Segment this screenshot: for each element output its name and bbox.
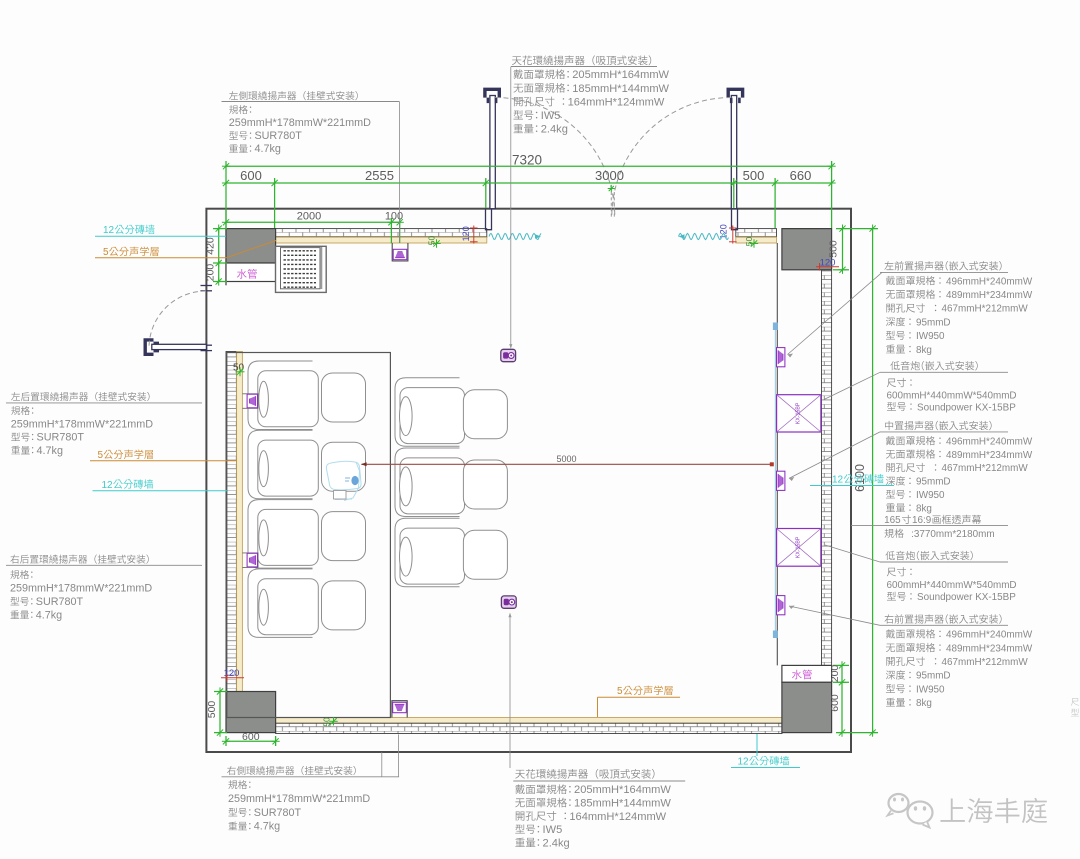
- svg-text:IW950: IW950: [916, 684, 945, 695]
- svg-text:500: 500: [828, 240, 840, 258]
- svg-text:496mmH*240mmW: 496mmH*240mmW: [946, 276, 1033, 287]
- svg-text:164mmH*124mmW: 164mmH*124mmW: [568, 96, 665, 108]
- svg-text:185mmH*144mmW: 185mmH*144mmW: [572, 83, 669, 95]
- svg-text:5: 5: [103, 247, 109, 258]
- svg-text:496mmH*240mmW: 496mmH*240mmW: [946, 436, 1033, 447]
- svg-text:259mmH*178mmW*221mmD: 259mmH*178mmW*221mmD: [10, 583, 152, 595]
- svg-text:467mmH*212mmW: 467mmH*212mmW: [942, 304, 1029, 315]
- svg-text:2.4kg: 2.4kg: [543, 837, 570, 849]
- svg-text:2000: 2000: [297, 211, 321, 223]
- svg-text:5: 5: [98, 450, 104, 461]
- svg-text:IW950: IW950: [916, 490, 945, 501]
- svg-text:165: 165: [884, 515, 901, 526]
- svg-text:420: 420: [205, 237, 217, 255]
- svg-text:SUR780T: SUR780T: [36, 596, 84, 608]
- svg-text:12: 12: [738, 757, 750, 768]
- svg-text:4.7kg: 4.7kg: [37, 445, 63, 457]
- svg-text:IW5: IW5: [541, 110, 561, 122]
- svg-text:205mmH*164mmW: 205mmH*164mmW: [572, 69, 669, 81]
- svg-text:259mmH*178mmW*221mmD: 259mmH*178mmW*221mmD: [11, 418, 153, 430]
- svg-text:8kg: 8kg: [916, 698, 932, 709]
- svg-text:100: 100: [385, 211, 403, 223]
- svg-text:500: 500: [743, 168, 765, 183]
- svg-text:KX-15BP: KX-15BP: [796, 402, 802, 424]
- svg-text:SUR780T: SUR780T: [37, 432, 85, 444]
- svg-text:50: 50: [322, 717, 332, 727]
- svg-text:500: 500: [206, 701, 218, 719]
- svg-text:5: 5: [617, 686, 623, 697]
- svg-text:95mmD: 95mmD: [916, 317, 951, 328]
- svg-text:205mmH*164mmW: 205mmH*164mmW: [574, 784, 671, 796]
- svg-text:600mmH*440mmW*540mmD: 600mmH*440mmW*540mmD: [887, 580, 1017, 591]
- svg-text:200: 200: [205, 264, 217, 282]
- svg-text:Soundpower KX-15BP: Soundpower KX-15BP: [917, 402, 1016, 413]
- svg-text:467mmH*212mmW: 467mmH*212mmW: [942, 463, 1029, 474]
- svg-text:489mmH*234mmW: 489mmH*234mmW: [946, 643, 1033, 654]
- svg-text:164mmH*124mmW: 164mmH*124mmW: [569, 811, 666, 823]
- svg-text:12: 12: [832, 475, 844, 486]
- svg-text:SUR780T: SUR780T: [254, 130, 302, 142]
- svg-text:600mmH*440mmW*540mmD: 600mmH*440mmW*540mmD: [887, 390, 1017, 401]
- svg-text:259mmH*178mmW*221mmD: 259mmH*178mmW*221mmD: [228, 793, 370, 805]
- svg-text:120: 120: [461, 226, 471, 241]
- svg-text:600: 600: [829, 694, 841, 712]
- svg-text:95mmD: 95mmD: [916, 671, 951, 682]
- svg-text:2555: 2555: [365, 168, 394, 183]
- svg-text:IW5: IW5: [543, 824, 563, 836]
- svg-text:95mmD: 95mmD: [916, 477, 951, 488]
- svg-text:600: 600: [242, 731, 260, 743]
- svg-text:2.4kg: 2.4kg: [541, 124, 568, 136]
- svg-text:4.7kg: 4.7kg: [254, 143, 280, 155]
- svg-text:660: 660: [790, 168, 812, 183]
- svg-text:5000: 5000: [556, 454, 576, 464]
- svg-text:3000: 3000: [595, 168, 624, 183]
- svg-text:Soundpower KX-15BP: Soundpower KX-15BP: [917, 592, 1016, 603]
- svg-text:600: 600: [240, 168, 262, 183]
- svg-text::3770mm*2180mm: :3770mm*2180mm: [911, 529, 994, 540]
- svg-text:467mmH*212mmW: 467mmH*212mmW: [942, 657, 1029, 668]
- svg-text:7320: 7320: [512, 153, 542, 168]
- svg-text:8kg: 8kg: [916, 345, 932, 356]
- svg-text:16:9: 16:9: [912, 515, 932, 526]
- svg-text:200: 200: [829, 665, 841, 683]
- svg-text:496mmH*240mmW: 496mmH*240mmW: [946, 630, 1033, 641]
- svg-text:259mmH*178mmW*221mmD: 259mmH*178mmW*221mmD: [229, 117, 371, 129]
- svg-text:185mmH*144mmW: 185mmH*144mmW: [574, 798, 671, 810]
- svg-text:8kg: 8kg: [916, 503, 932, 514]
- svg-text:120: 120: [719, 224, 729, 239]
- svg-text:12: 12: [103, 225, 115, 236]
- svg-text:IW950: IW950: [916, 331, 945, 342]
- svg-text:489mmH*234mmW: 489mmH*234mmW: [946, 450, 1033, 461]
- svg-text:SUR780T: SUR780T: [254, 807, 302, 819]
- svg-text:4.7kg: 4.7kg: [36, 609, 62, 621]
- svg-text:489mmH*234mmW: 489mmH*234mmW: [946, 290, 1033, 301]
- svg-text:12: 12: [102, 480, 114, 491]
- svg-text:KX-15BP: KX-15BP: [796, 536, 802, 558]
- svg-text:4.7kg: 4.7kg: [254, 821, 280, 833]
